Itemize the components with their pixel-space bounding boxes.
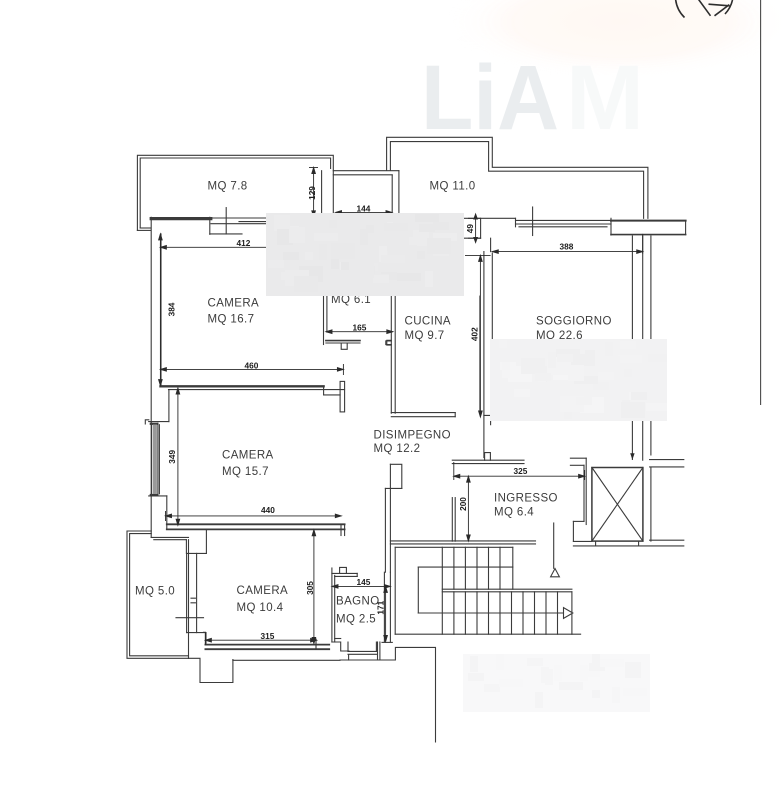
svg-text:349: 349 xyxy=(167,449,177,463)
svg-text:144: 144 xyxy=(357,204,371,214)
svg-text:MQ 11.0: MQ 11.0 xyxy=(430,181,476,193)
svg-text:DISIMPEGNO: DISIMPEGNO xyxy=(374,430,451,442)
svg-text:165: 165 xyxy=(353,323,367,333)
svg-text:CAMERA: CAMERA xyxy=(237,585,289,597)
svg-text:49: 49 xyxy=(465,224,475,234)
svg-text:MQ 2.5: MQ 2.5 xyxy=(336,614,376,626)
svg-text:MQ 10.4: MQ 10.4 xyxy=(237,602,284,614)
svg-text:305: 305 xyxy=(305,581,315,595)
svg-text:412: 412 xyxy=(237,238,251,248)
svg-text:129: 129 xyxy=(307,186,317,200)
svg-text:MQ 16.7: MQ 16.7 xyxy=(208,314,255,326)
svg-text:171: 171 xyxy=(376,600,386,614)
svg-text:145: 145 xyxy=(357,577,371,587)
svg-text:440: 440 xyxy=(261,505,275,515)
svg-text:INGRESSO: INGRESSO xyxy=(494,493,558,505)
svg-text:MQ 9.7: MQ 9.7 xyxy=(405,330,445,342)
svg-text:315: 315 xyxy=(261,631,275,641)
svg-text:LiA: LiA xyxy=(421,47,559,149)
svg-text:CUCINA: CUCINA xyxy=(405,316,452,328)
svg-text:CAMERA: CAMERA xyxy=(208,298,260,310)
svg-text:384: 384 xyxy=(167,302,177,316)
svg-text:MQ 7.8: MQ 7.8 xyxy=(208,181,248,193)
svg-text:CAMERA: CAMERA xyxy=(222,450,274,462)
svg-text:M: M xyxy=(566,47,644,149)
svg-text:200: 200 xyxy=(458,497,468,511)
svg-text:MQ 12.2: MQ 12.2 xyxy=(374,443,421,455)
svg-text:SOGGIORNO: SOGGIORNO xyxy=(536,316,612,328)
svg-text:402: 402 xyxy=(469,327,479,341)
svg-text:MQ 6.4: MQ 6.4 xyxy=(494,507,534,519)
svg-text:325: 325 xyxy=(514,466,528,476)
svg-text:MQ 5.0: MQ 5.0 xyxy=(135,586,175,598)
svg-text:BAGNO: BAGNO xyxy=(336,596,380,608)
svg-text:388: 388 xyxy=(560,242,574,252)
svg-text:MQ 15.7: MQ 15.7 xyxy=(222,466,269,478)
svg-text:460: 460 xyxy=(245,361,259,371)
